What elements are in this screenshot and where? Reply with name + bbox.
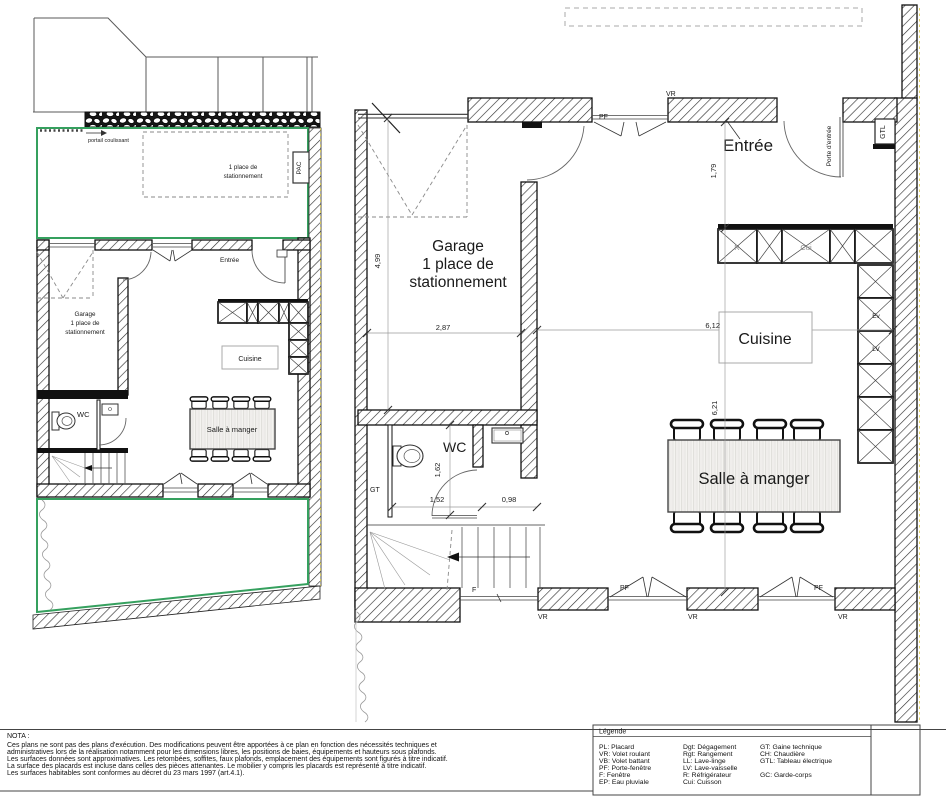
parking-label-line2: stationnement bbox=[224, 173, 263, 180]
dim-sejour-width: 6,12 bbox=[705, 321, 720, 330]
garage-label-1: Garage bbox=[432, 238, 484, 255]
nota-line-1: Ces plans ne sont pas des plans d'exécut… bbox=[7, 742, 437, 749]
legend-ep: EP: Eau pluviale bbox=[599, 779, 649, 786]
garage-label-2: 1 place de bbox=[422, 256, 494, 273]
f-window-label: F bbox=[472, 587, 476, 594]
small-garage-label-1: Garage bbox=[74, 311, 96, 318]
legend-lv: LV: Lave-vaisselle bbox=[683, 765, 738, 772]
riprap-strip bbox=[85, 112, 320, 127]
nota-title: NOTA : bbox=[7, 733, 29, 740]
legend-dgt: Dgt: Dégagement bbox=[683, 744, 736, 751]
nota-line-2: administratives lors de la réalisation n… bbox=[7, 749, 437, 756]
pac-label: PAC bbox=[296, 161, 303, 174]
legend-r: R: Réfrigérateur bbox=[683, 772, 732, 779]
legend-vb: VB: Volet battant bbox=[599, 758, 650, 765]
parking-label-line1: 1 place de bbox=[229, 164, 258, 171]
vr-label-bottom-3: VR bbox=[838, 614, 848, 621]
nota-line-3: Les surfaces données sont approximatives… bbox=[7, 756, 448, 763]
pf-label-bottom-2: PF bbox=[814, 585, 823, 592]
garage-label-3: stationnement bbox=[409, 274, 507, 291]
dim-wc-depth: 1,62 bbox=[433, 463, 442, 478]
vr-label-bottom-2: VR bbox=[688, 614, 698, 621]
legend-gc: GC: Garde-corps bbox=[760, 772, 812, 779]
legend-title: Légende bbox=[599, 729, 626, 736]
porte-entree-label: Porte d'entrée bbox=[826, 125, 833, 166]
neighbour-strip bbox=[309, 128, 321, 586]
legend-gtl: GTL: Tableau électrique bbox=[760, 758, 832, 765]
cooktop-label: Cui bbox=[800, 243, 812, 252]
floorplan-canvas: portail coulissant 1 place de stationnem… bbox=[0, 0, 946, 800]
vr-label-bottom-1: VR bbox=[538, 614, 548, 621]
cuisine-label: Cuisine bbox=[738, 331, 791, 348]
small-cuisine-label: Cuisine bbox=[238, 356, 261, 363]
dishwasher-label: LV bbox=[872, 346, 880, 353]
dim-sejour-depth: 6,21 bbox=[710, 401, 719, 416]
legend-gt: GT: Gaine technique bbox=[760, 744, 822, 751]
legend-vr: VR: Volet roulant bbox=[599, 751, 650, 758]
dim-entree-depth: 1,79 bbox=[709, 164, 718, 179]
small-salle-label: Salle à manger bbox=[207, 425, 258, 434]
fridge-label: R bbox=[734, 243, 740, 252]
legend-pl: PL: Placard bbox=[599, 744, 634, 751]
vr-label-top: VR bbox=[666, 91, 676, 98]
small-entree-label: Entrée bbox=[220, 257, 240, 264]
pf-label-top: PF bbox=[599, 114, 608, 121]
legend-ll: LL: Lave-linge bbox=[683, 758, 726, 765]
legend-rgt: Rgt: Rangement bbox=[683, 751, 733, 758]
small-garage-label-2: 1 place de bbox=[70, 320, 100, 327]
pf-label-bottom-1: PF bbox=[620, 585, 629, 592]
small-garage-label-3: stationnement bbox=[65, 329, 105, 336]
sliding-gate-label: portail coulissant bbox=[88, 138, 129, 144]
legend-ch: CH: Chaudière bbox=[760, 751, 805, 758]
entree-label: Entrée bbox=[723, 136, 773, 155]
architectural-drawing: portail coulissant 1 place de stationnem… bbox=[0, 0, 946, 800]
legend-f: F: Fenêtre bbox=[599, 772, 631, 779]
legend-pf: PF: Porte-fenêtre bbox=[599, 765, 651, 772]
dim-garage-width: 2,87 bbox=[436, 323, 451, 332]
gt-label: GT bbox=[370, 487, 380, 494]
salle-label: Salle à manger bbox=[699, 470, 810, 488]
small-wc-label: WC bbox=[77, 410, 90, 419]
sink-label: Ev bbox=[872, 313, 880, 320]
dim-degagement-width: 0,98 bbox=[502, 495, 517, 504]
dim-garage-depth: 4,99 bbox=[373, 254, 382, 269]
legend-cui: Cui: Cuisson bbox=[683, 779, 722, 786]
nota-line-5: Les surfaces habitables sont conformes a… bbox=[7, 770, 244, 777]
dim-wc-width: 1,52 bbox=[430, 495, 445, 504]
gtl-label: GTL bbox=[880, 125, 887, 139]
nota-line-4: La surface des placards est incluse dans… bbox=[7, 763, 426, 770]
wc-label: WC bbox=[443, 439, 466, 455]
